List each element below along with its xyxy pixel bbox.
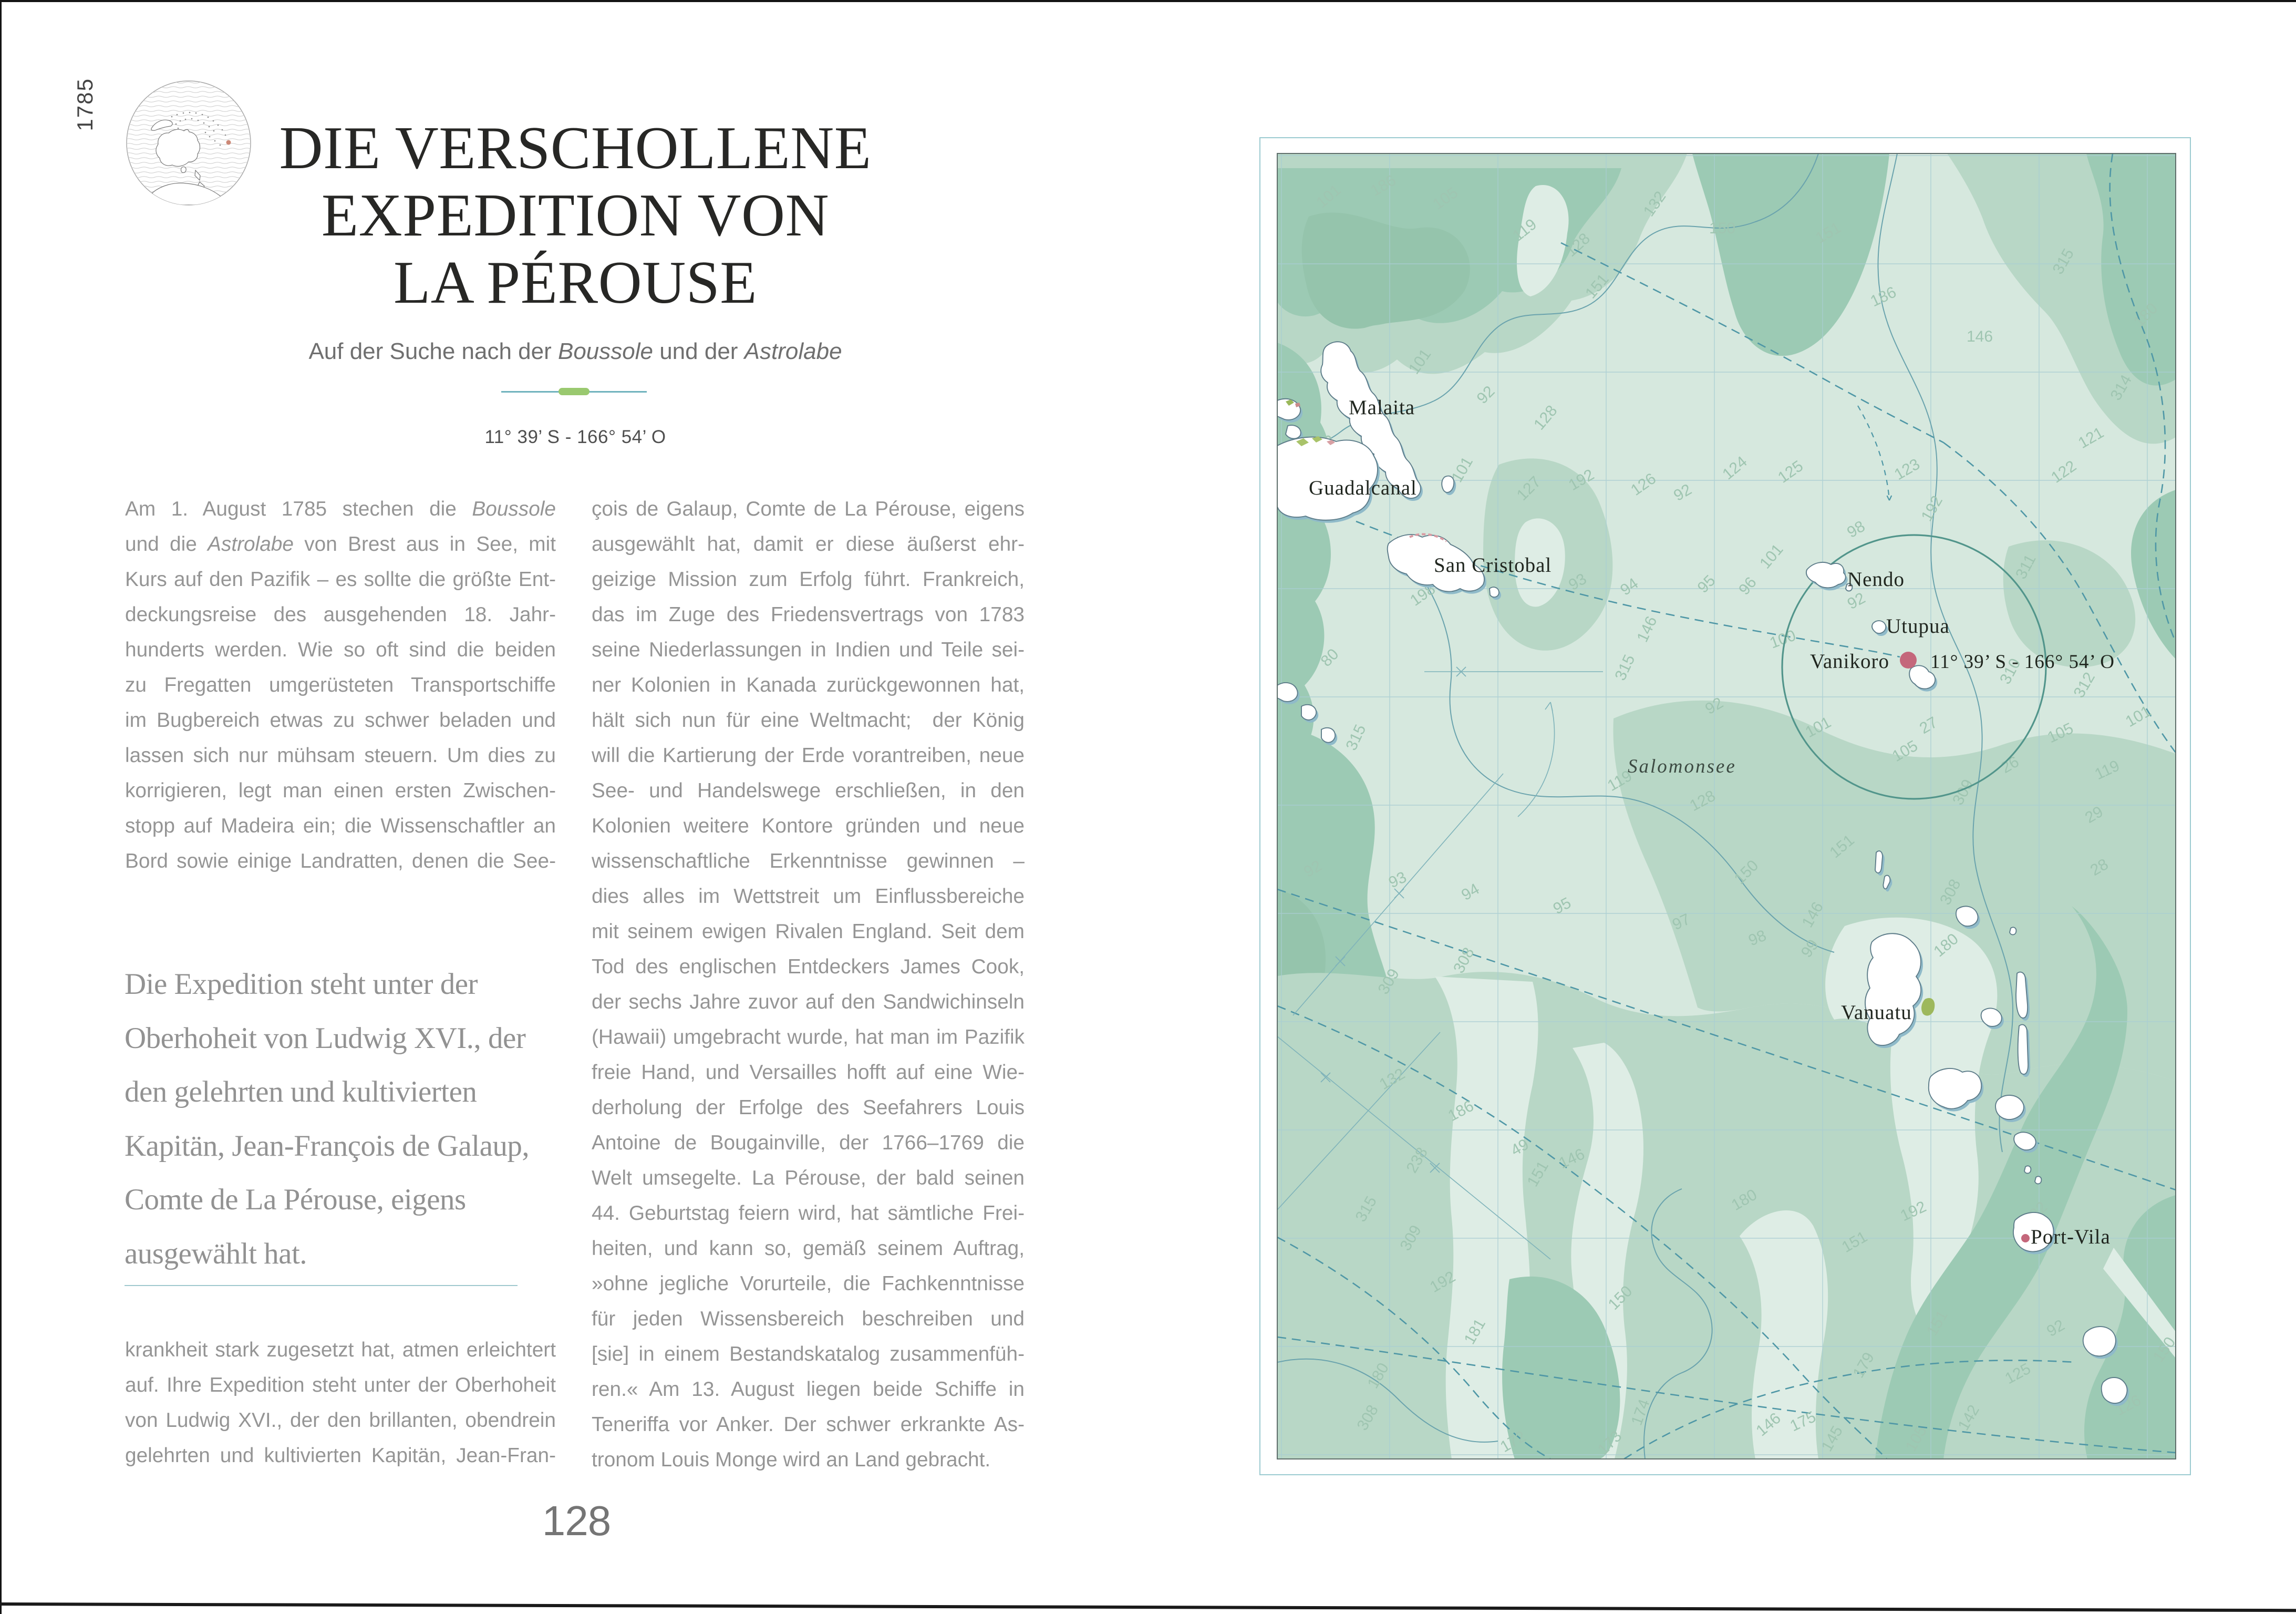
svg-text:Guadalcanal: Guadalcanal [1309, 477, 1417, 499]
svg-text:Vanikoro: Vanikoro [1810, 650, 1889, 673]
svg-text:Salomonsee: Salomonsee [1628, 756, 1736, 777]
svg-text:Nendo: Nendo [1847, 568, 1905, 591]
svg-text:Port-Vila: Port-Vila [2031, 1226, 2111, 1248]
svg-text:150: 150 [1709, 220, 1735, 237]
svg-text:146: 146 [1967, 328, 1993, 345]
svg-text:11° 39’ S - 166° 54’ O: 11° 39’ S - 166° 54’ O [1930, 651, 2115, 673]
svg-text:Malaita: Malaita [1349, 396, 1415, 419]
svg-text:San Cristobal: San Cristobal [1434, 554, 1552, 577]
svg-text:Vanuatu: Vanuatu [1841, 1001, 1912, 1024]
svg-text:Utupua: Utupua [1886, 615, 1950, 638]
